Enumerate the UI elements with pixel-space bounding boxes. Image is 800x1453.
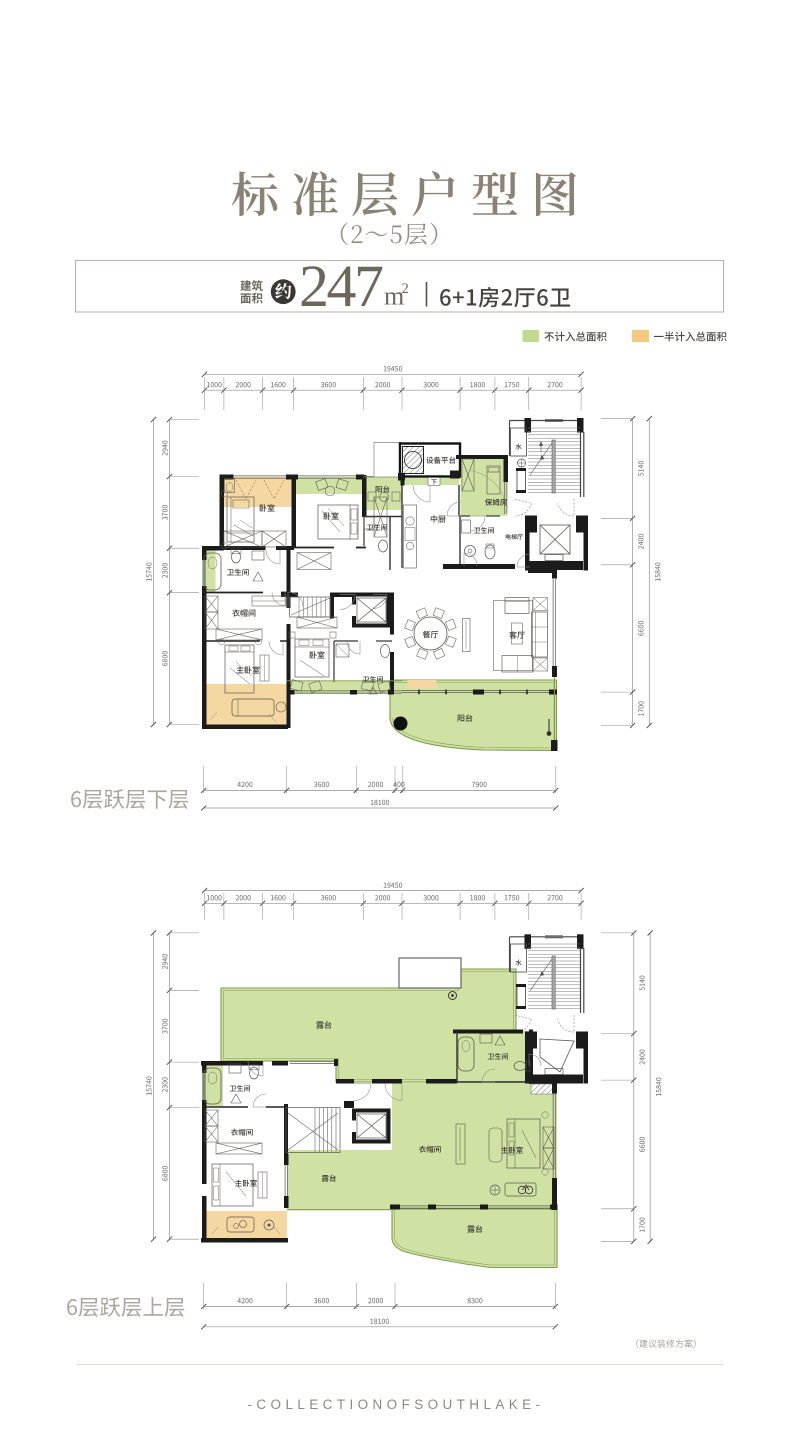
svg-text:-COLLECTIONOFSOUTHLAKE-: -COLLECTIONOFSOUTHLAKE-: [248, 1397, 545, 1412]
